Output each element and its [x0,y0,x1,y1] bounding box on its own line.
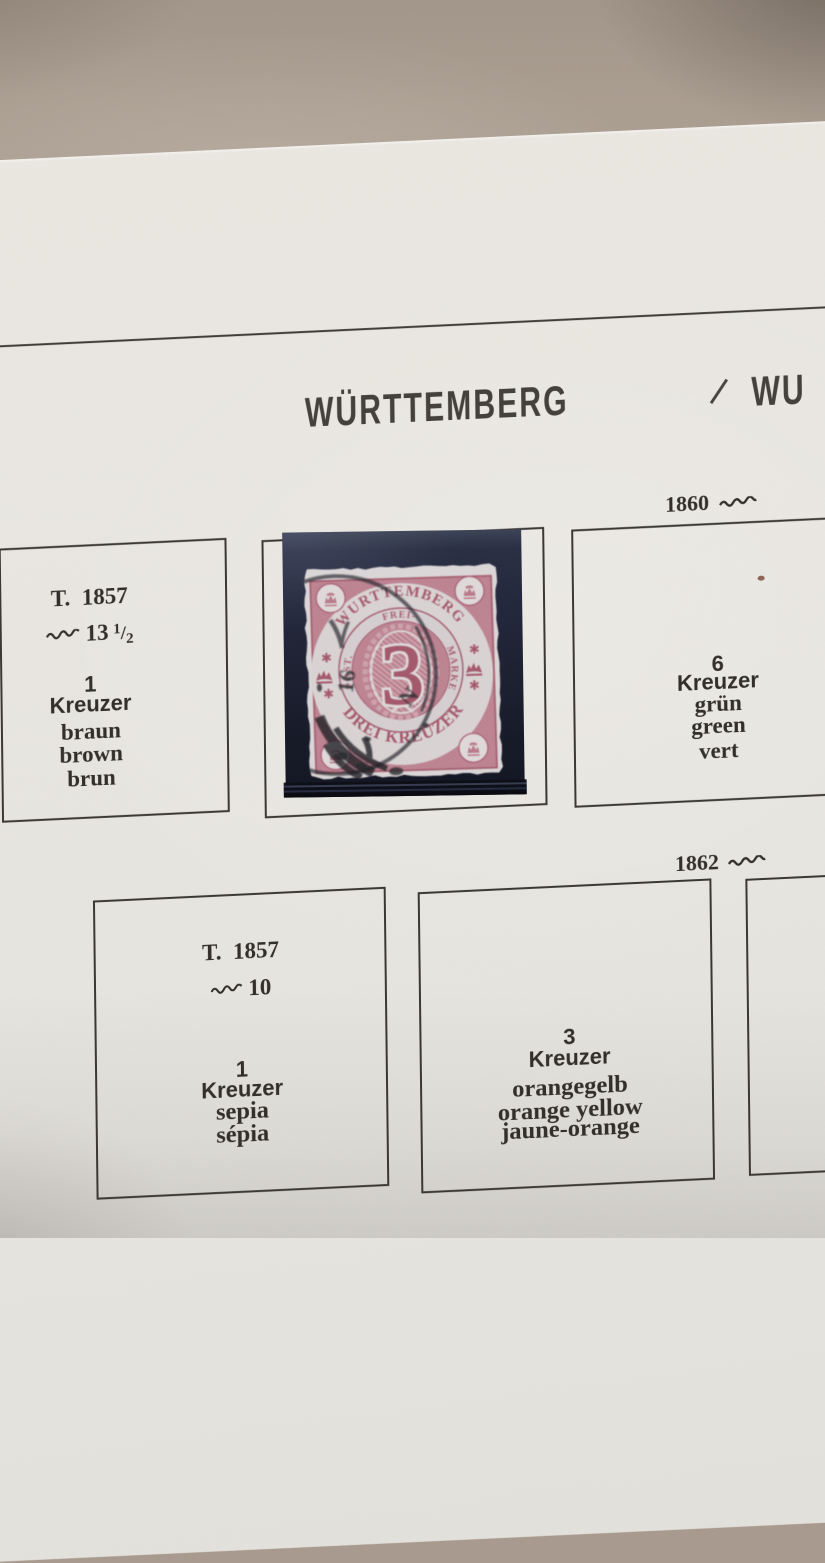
svg-text:✱: ✱ [469,678,480,693]
svg-text:✱: ✱ [469,642,480,657]
svg-text:✱: ✱ [321,650,332,665]
svg-text:16: 16 [333,668,361,694]
svg-text:3: 3 [379,625,425,722]
